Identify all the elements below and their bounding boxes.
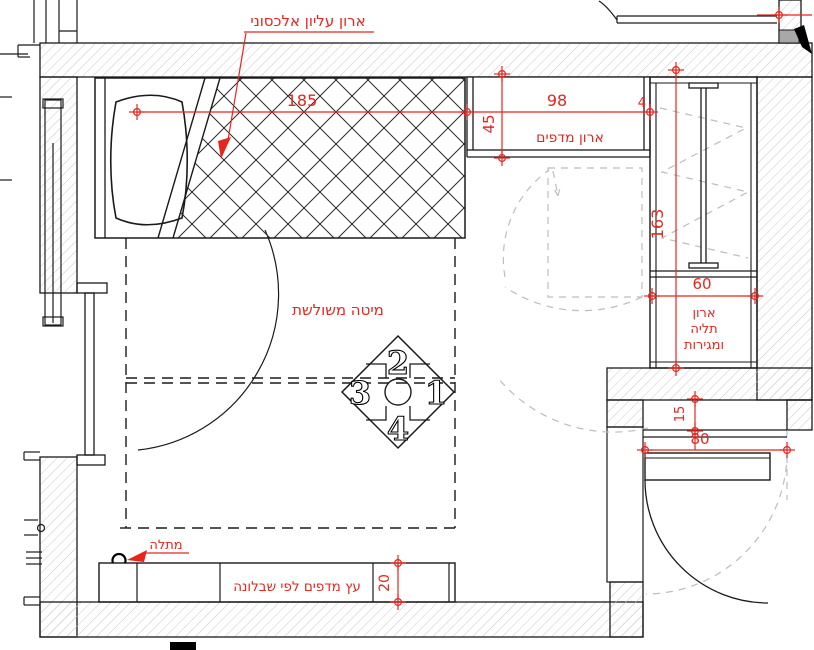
elevation-number-left: 3 — [349, 374, 371, 412]
label-bottom-shelf: עץ מדפים לפי שבלונה — [233, 579, 361, 595]
elevation-number-top: 2 — [387, 344, 409, 382]
dim-door-tag: 4 — [638, 96, 646, 111]
bed — [95, 78, 465, 528]
dim-bed-length: 185 — [287, 91, 318, 110]
dim-closet-width: 60 — [692, 275, 711, 293]
label-hanging-cabinet-3: ומגירות — [684, 338, 724, 353]
dim-entry-width: 80 — [690, 430, 709, 448]
bottom-exterior-block — [170, 642, 196, 650]
pillow — [111, 95, 188, 225]
label-hanging-cabinet-1: ארון — [692, 306, 715, 321]
jamb-top — [77, 283, 107, 293]
hanger-hook — [113, 554, 126, 563]
wall-bottom-right-block — [607, 368, 812, 400]
jamb-bottom — [77, 455, 105, 465]
entry-door-leaf — [645, 453, 770, 480]
wall-pilaster-top — [607, 400, 643, 427]
dim-niche-depth: 15 — [673, 406, 688, 423]
label-hanging-cabinet-2: תליה — [690, 322, 717, 337]
label-shelf-cabinet: ארון מדפים — [536, 130, 604, 146]
dim-shelf-cabinet-depth: 45 — [480, 114, 498, 133]
hanger-arrowhead — [127, 550, 147, 562]
wall-right — [757, 77, 812, 400]
clothes-zigzag — [660, 108, 748, 258]
label-upper-cabinet: ארון עליון אלכסוני — [250, 12, 365, 30]
entry-door-swing-arc — [645, 480, 768, 603]
wall-pilaster-bottom — [610, 582, 643, 637]
closet-rod — [689, 83, 718, 268]
dim-shelf-depth: 20 — [377, 574, 393, 592]
label-hanger: מתלה — [149, 538, 182, 553]
door-swing-arc-left — [138, 230, 279, 450]
label-bed: מיטה משולשת — [292, 301, 384, 319]
bed-crosshatch — [173, 78, 465, 238]
entry-door — [643, 430, 787, 603]
left-door — [77, 230, 279, 465]
wall-top — [40, 43, 812, 77]
floor-plan-page: 2 3 1 4 ארון עליון אלכס — [0, 0, 814, 650]
wall-right-jamb — [787, 400, 812, 430]
dim-closet-height: 163 — [648, 209, 667, 240]
elevation-number-right: 1 — [425, 374, 447, 412]
elevation-marker: 2 3 1 4 — [342, 336, 454, 448]
entry-door-dashed-arc — [646, 452, 787, 594]
wall-bottom — [40, 602, 643, 637]
elevation-number-bottom: 4 — [387, 410, 409, 448]
door-leaf-left — [85, 293, 94, 455]
dim-shelf-cabinet-width: 98 — [547, 91, 567, 110]
floor-plan-canvas: 2 3 1 4 ארון עליון אלכס — [0, 0, 814, 650]
